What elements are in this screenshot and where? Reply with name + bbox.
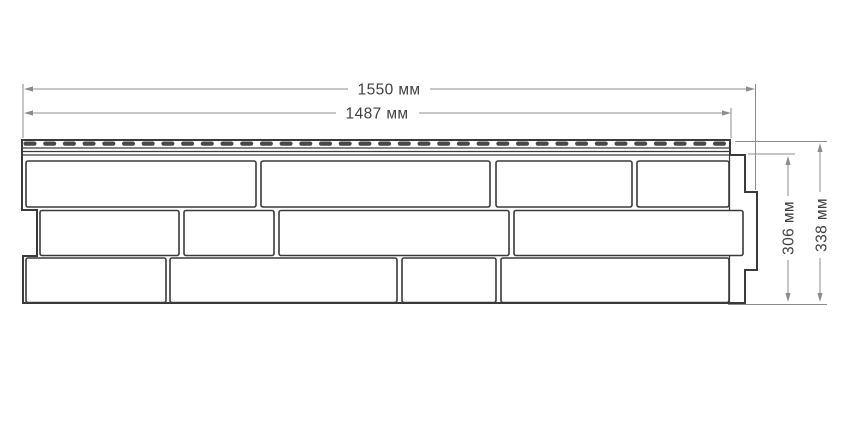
arrow-left-icon: [24, 110, 33, 115]
nail-slot: [496, 142, 509, 146]
dimension-nail-strip-length: 1487 мм: [24, 106, 731, 139]
total-length-label: 1550 мм: [358, 82, 421, 99]
brick: [170, 258, 397, 303]
nail-slot: [240, 142, 253, 146]
nail-slot: [713, 142, 726, 146]
arrow-right-icon: [746, 86, 755, 91]
nail-slot: [161, 142, 174, 146]
arrow-up-icon: [785, 156, 790, 165]
nail-strip-length-label: 1487 мм: [346, 106, 409, 123]
body-height-label: 306 мм: [781, 201, 798, 255]
nail-slot: [43, 142, 56, 146]
brick: [184, 211, 274, 256]
nail-slot: [260, 142, 273, 146]
nail-slot: [358, 142, 371, 146]
nail-slot: [221, 142, 234, 146]
nail-slot: [299, 142, 312, 146]
nail-slot: [437, 142, 450, 146]
total-height-label: 338 мм: [814, 198, 831, 252]
brick: [514, 211, 743, 256]
nail-slot: [418, 142, 431, 146]
nail-slot: [398, 142, 411, 146]
nail-slot: [477, 142, 490, 146]
arrow-down-icon: [785, 293, 790, 302]
nail-slot: [83, 142, 96, 146]
panel-diagram: 1550 мм 1487 мм 306 мм 338 мм: [0, 0, 850, 425]
nail-slot: [319, 142, 332, 146]
nail-slot: [457, 142, 470, 146]
nail-slot: [634, 142, 647, 146]
arrow-right-icon: [722, 110, 731, 115]
nail-slot: [181, 142, 194, 146]
nail-slot: [693, 142, 706, 146]
nail-slot: [674, 142, 687, 146]
brick: [402, 258, 496, 303]
nail-slot: [63, 142, 76, 146]
brick: [26, 161, 256, 207]
brick: [637, 161, 729, 207]
nail-slot: [615, 142, 628, 146]
brick: [279, 211, 509, 256]
drawing-canvas: 1550 мм 1487 мм 306 мм 338 мм: [0, 0, 850, 425]
nail-slot: [122, 142, 135, 146]
brick: [501, 258, 729, 303]
arrow-down-icon: [817, 293, 822, 302]
nail-slot: [536, 142, 549, 146]
nail-slot: [378, 142, 391, 146]
nail-slot: [595, 142, 608, 146]
nail-slot: [654, 142, 667, 146]
nail-slot: [24, 142, 37, 146]
nail-slot: [280, 142, 293, 146]
brick: [496, 161, 632, 207]
nail-slot: [516, 142, 529, 146]
arrow-left-icon: [24, 86, 33, 91]
arrow-up-icon: [817, 143, 822, 152]
brick: [261, 161, 490, 207]
nail-slot: [339, 142, 352, 146]
nail-slot: [555, 142, 568, 146]
nail-slot: [201, 142, 214, 146]
brick: [40, 211, 179, 256]
nail-slot: [102, 142, 115, 146]
nail-slot: [142, 142, 155, 146]
panel: [22, 140, 757, 303]
nail-slot: [575, 142, 588, 146]
brick: [26, 258, 166, 303]
